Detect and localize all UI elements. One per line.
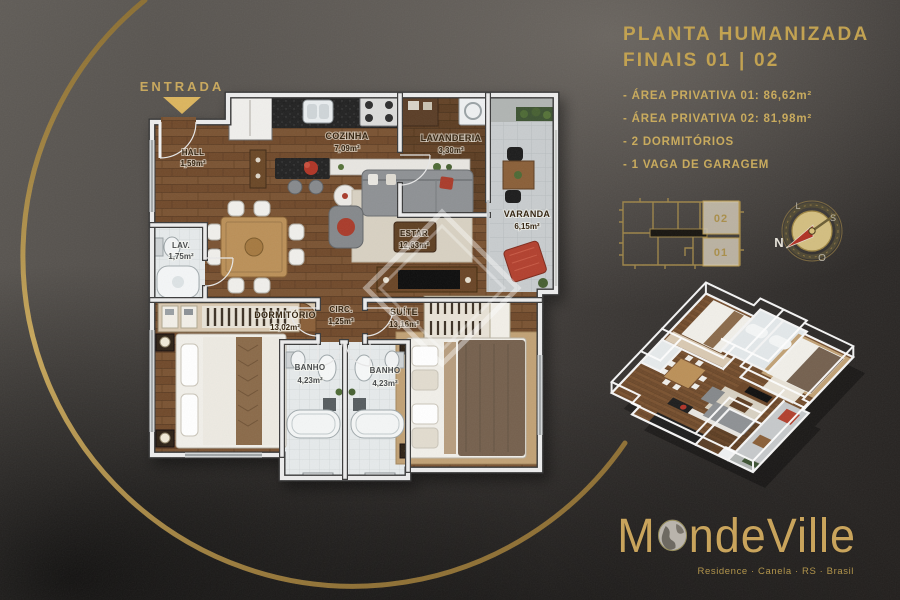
chair (254, 201, 270, 216)
plant (538, 278, 548, 288)
pillow (181, 344, 198, 386)
shower-niche (353, 398, 366, 411)
kitchen-island (275, 158, 330, 179)
chair (207, 249, 222, 265)
compass-o: O (818, 253, 826, 264)
room-label: BANHO (295, 363, 326, 372)
room-label: DORMITÓRIO (254, 309, 316, 320)
room-area: 3,30m² (438, 146, 464, 155)
room-label: CIRC. (329, 305, 352, 314)
red-pillow (439, 176, 454, 190)
washing-machine (459, 97, 487, 125)
room-label: HALL (182, 148, 205, 157)
logo-text-rest: ndeVille (689, 508, 856, 564)
title-line2: FINAIS 01 | 02 (623, 48, 895, 74)
logo-wordmark: M ndeVille (617, 508, 856, 564)
suite-duvet (458, 340, 525, 456)
compass-l: L (795, 201, 800, 211)
balcony-chair (507, 147, 523, 161)
pillow (412, 370, 438, 390)
feature-item: - 1 VAGA DE GARAGEM (623, 159, 895, 171)
compass-n: N (774, 235, 783, 250)
entrada-arrow-icon (163, 97, 201, 114)
title-line1: PLANTA HUMANIZADA (623, 22, 895, 48)
room-area: 7,09m² (334, 144, 360, 153)
logo-text-m: M (617, 508, 656, 564)
logo-tagline: Residence · Canela · RS · Brasil (617, 566, 856, 577)
globe-icon (657, 519, 688, 552)
stool (309, 180, 323, 194)
chair (289, 249, 304, 265)
room-area: 1,59m² (180, 159, 206, 168)
room-area: 1,75m² (168, 252, 194, 261)
stove (360, 97, 398, 126)
tv (398, 270, 460, 289)
entry-gap (161, 117, 196, 127)
room-area: 13,02m² (270, 323, 300, 332)
shower-niche (323, 398, 336, 411)
room-label: LAVANDERIA (421, 133, 482, 143)
keyplan-unit-01-label: 01 (714, 247, 728, 259)
keyplan: 02 01 (619, 198, 744, 269)
room-area: 1,25m² (328, 317, 354, 326)
balcony-chair (505, 190, 521, 203)
toilet-tank (155, 238, 163, 256)
room-area: 4,23m² (297, 376, 323, 385)
poster: ENTRADA (0, 0, 900, 600)
feature-item: - ÁREA PRIVATIVA 02: 81,98m² (623, 113, 895, 125)
laundry-cabinet (402, 96, 438, 126)
entrada-marker: ENTRADA (140, 79, 225, 114)
info-panel: PLANTA HUMANIZADA FINAIS 01 | 02 - ÁREA … (623, 22, 895, 182)
stool (288, 180, 302, 194)
room-label: COZINHA (325, 131, 368, 141)
feature-list: - ÁREA PRIVATIVA 01: 86,62m² - ÁREA PRIV… (623, 90, 895, 171)
feature-item: - 2 DORMITÓRIOS (623, 136, 895, 148)
room-area: 6,15m² (514, 222, 540, 231)
chair (228, 201, 244, 216)
pillow (412, 404, 438, 424)
room-label: BANHO (370, 366, 401, 375)
keyplan-unit-02-label: 02 (714, 213, 728, 225)
floorplan-3d (604, 276, 873, 488)
hall-console (250, 150, 266, 188)
floorplan-2d: HALL 1,59m² COZINHA 7,09m² LAVANDERIA 3,… (152, 95, 556, 481)
chair (207, 224, 222, 240)
compass-icon: N L S O (774, 201, 842, 264)
sofa (362, 170, 473, 216)
brand-logo: M ndeVille Residence · Canela · RS · Bra… (617, 512, 856, 577)
compass-s: S (830, 213, 836, 223)
room-label: LAV. (172, 241, 190, 250)
keyplan-core (650, 229, 707, 237)
chair (254, 278, 270, 293)
feature-item: - ÁREA PRIVATIVA 01: 86,62m² (623, 90, 895, 102)
room-area: 4,23m² (372, 379, 398, 388)
pillow (181, 394, 198, 436)
entrada-label: ENTRADA (140, 79, 225, 94)
chair (289, 224, 304, 240)
room-label: VARANDA (504, 209, 551, 219)
chair (228, 278, 244, 293)
pillow (412, 428, 438, 448)
